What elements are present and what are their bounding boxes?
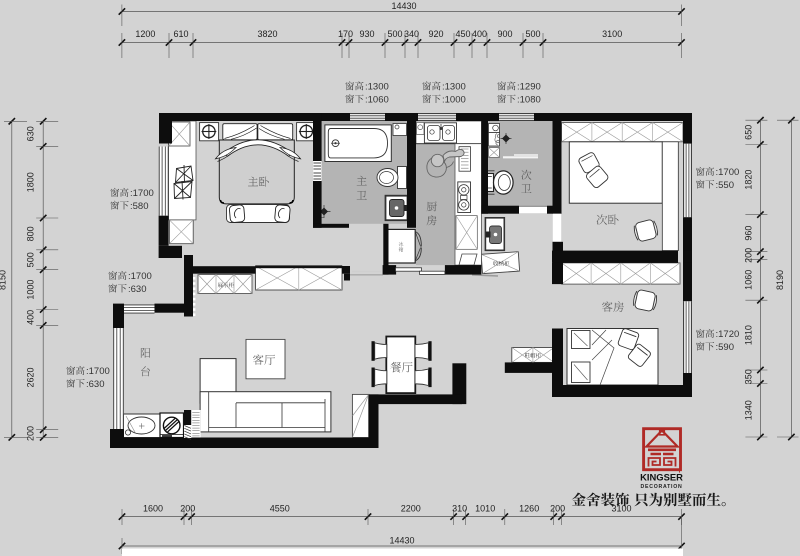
svg-text:200: 200 (26, 426, 36, 441)
svg-text::590: :590 (716, 342, 735, 353)
svg-text:200: 200 (744, 248, 754, 263)
svg-text::1700: :1700 (86, 366, 110, 377)
svg-text::1060: :1060 (365, 94, 389, 105)
svg-text:1000: 1000 (26, 280, 36, 300)
svg-text::630: :630 (86, 379, 105, 390)
svg-text:1010: 1010 (475, 504, 495, 514)
svg-text::1080: :1080 (517, 94, 541, 105)
svg-text:650: 650 (744, 125, 754, 140)
svg-text::1700: :1700 (128, 271, 152, 282)
svg-text::550: :550 (716, 180, 735, 191)
svg-text::1700: :1700 (130, 188, 154, 199)
svg-text:1810: 1810 (744, 325, 754, 345)
svg-text:960: 960 (744, 226, 754, 241)
svg-text:500: 500 (387, 29, 402, 39)
svg-text:450: 450 (455, 29, 470, 39)
svg-text:14430: 14430 (391, 1, 416, 11)
svg-text:': ' (679, 470, 681, 479)
svg-text::580: :580 (130, 201, 149, 212)
svg-text::1720: :1720 (716, 329, 740, 340)
svg-text:3100: 3100 (611, 504, 631, 514)
svg-text:920: 920 (428, 29, 443, 39)
svg-text:400: 400 (26, 310, 36, 325)
svg-text::1000: :1000 (442, 94, 466, 105)
svg-text:630: 630 (26, 126, 36, 141)
svg-text:2200: 2200 (401, 504, 421, 514)
svg-text:8190: 8190 (775, 270, 785, 290)
svg-text:500: 500 (525, 29, 540, 39)
svg-text:1260: 1260 (519, 504, 539, 514)
svg-text::1290: :1290 (517, 82, 541, 93)
svg-text:350: 350 (744, 369, 754, 384)
svg-text:2620: 2620 (26, 367, 36, 387)
svg-text:400: 400 (472, 29, 487, 39)
svg-text:DECORATION: DECORATION (641, 484, 683, 490)
svg-text:14430: 14430 (389, 536, 414, 546)
svg-text:3820: 3820 (257, 29, 277, 39)
svg-text:1340: 1340 (744, 400, 754, 420)
svg-text:1800: 1800 (26, 172, 36, 192)
svg-text::630: :630 (128, 284, 147, 295)
svg-text:1820: 1820 (744, 170, 754, 190)
svg-text:KINGSER: KINGSER (640, 472, 683, 483)
svg-text:340: 340 (404, 29, 419, 39)
svg-text:610: 610 (173, 29, 188, 39)
svg-text:200: 200 (180, 504, 195, 514)
svg-text:1600: 1600 (143, 504, 163, 514)
svg-text:900: 900 (497, 29, 512, 39)
svg-text::1700: :1700 (716, 167, 740, 178)
svg-text:310: 310 (452, 504, 467, 514)
svg-text:800: 800 (26, 226, 36, 241)
svg-text:8150: 8150 (0, 270, 8, 290)
svg-text::1300: :1300 (442, 82, 466, 93)
svg-text:200: 200 (550, 504, 565, 514)
svg-text:170: 170 (338, 29, 353, 39)
svg-text:3100: 3100 (602, 29, 622, 39)
svg-text::1300: :1300 (365, 82, 389, 93)
svg-text:930: 930 (359, 29, 374, 39)
svg-text:1200: 1200 (135, 29, 155, 39)
svg-text:500: 500 (26, 252, 36, 267)
svg-text:1060: 1060 (744, 270, 754, 290)
svg-text:4550: 4550 (270, 504, 290, 514)
